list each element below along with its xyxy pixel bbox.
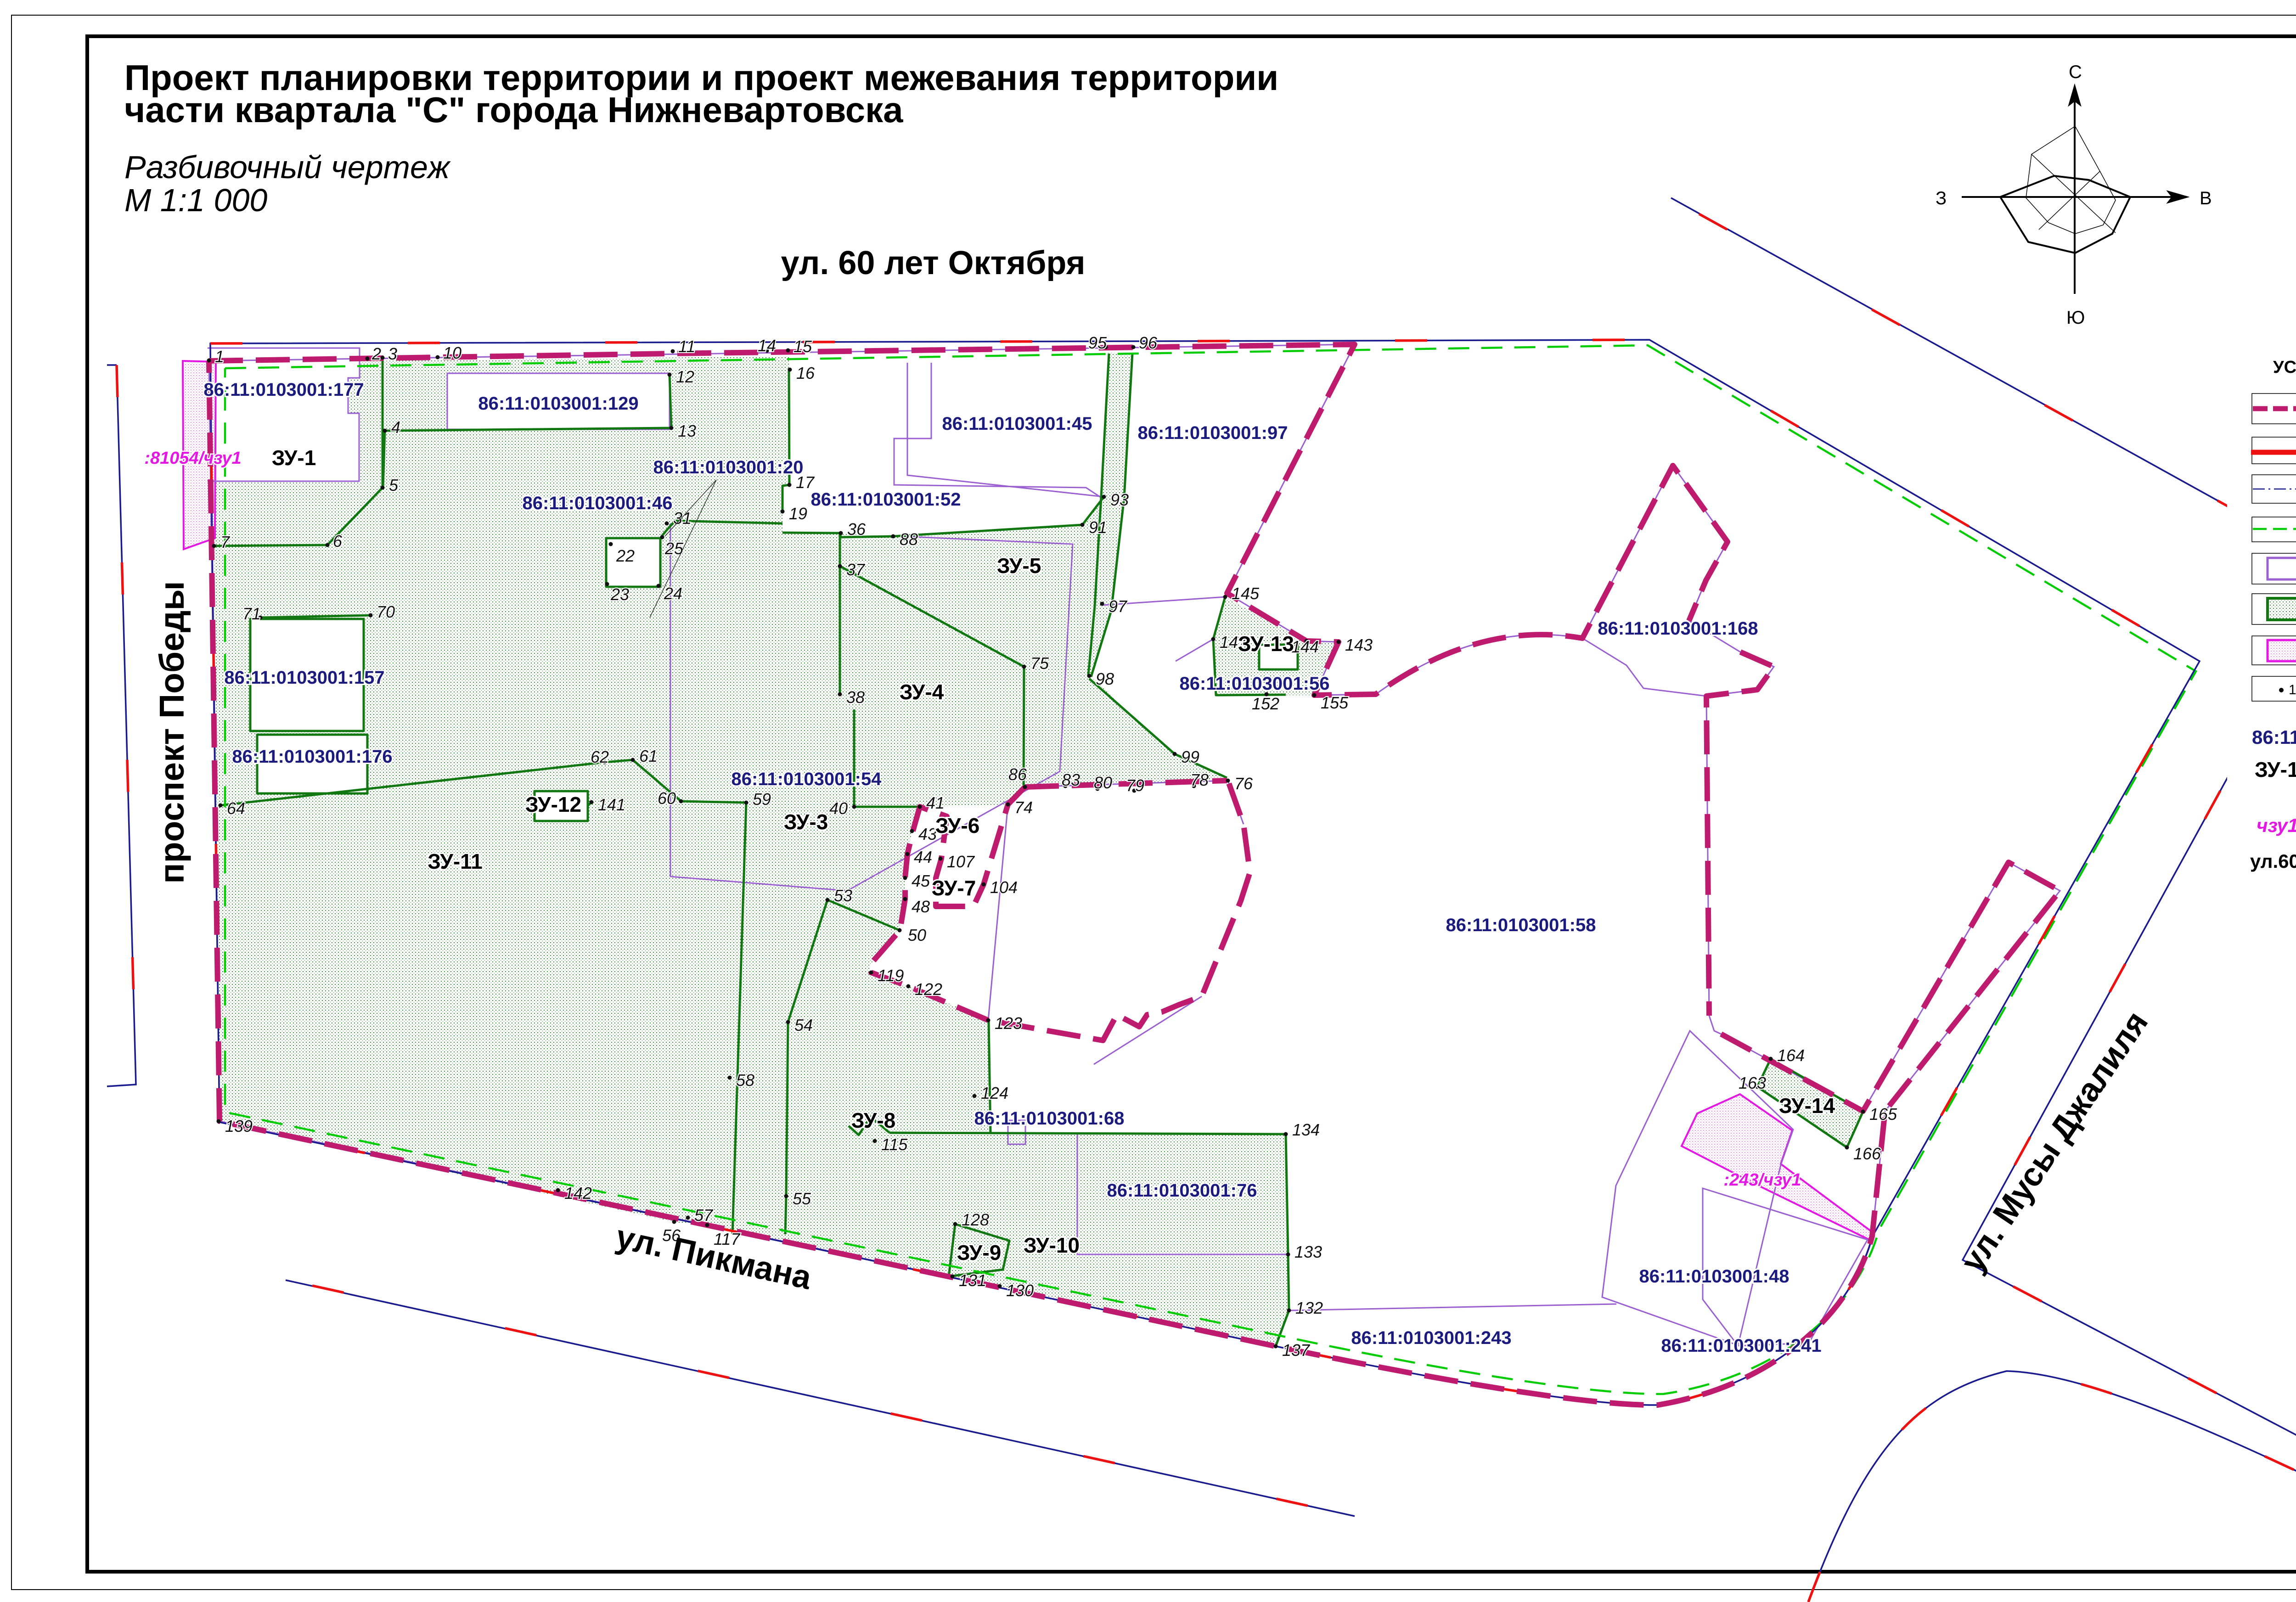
- svg-text:45: 45: [912, 871, 930, 890]
- svg-text:86:11:0103001:176: 86:11:0103001:176: [232, 747, 392, 767]
- svg-text:98: 98: [1096, 669, 1114, 688]
- svg-text:проспект Победы: проспект Победы: [152, 581, 191, 883]
- svg-text:78: 78: [1190, 770, 1209, 789]
- svg-text:144: 144: [1291, 637, 1319, 656]
- svg-text:79: 79: [1126, 776, 1144, 795]
- svg-text:48: 48: [912, 897, 930, 916]
- svg-text:3: 3: [388, 344, 397, 363]
- svg-text:86:11:0103001:76: 86:11:0103001:76: [1107, 1180, 1257, 1201]
- svg-text:Ю: Ю: [2066, 308, 2085, 328]
- svg-text:107: 107: [947, 852, 975, 871]
- svg-text:86:11:0103001:157: 86:11:0103001:157: [224, 668, 384, 688]
- svg-text:ЗУ-11: ЗУ-11: [428, 849, 483, 873]
- svg-text:124: 124: [981, 1084, 1008, 1102]
- svg-text:152: 152: [1252, 694, 1279, 713]
- svg-text:12: 12: [676, 367, 694, 386]
- svg-text:ЗУ-9: ЗУ-9: [957, 1241, 1002, 1265]
- svg-text:86:11:0103001:168: 86:11:0103001:168: [1598, 618, 1758, 639]
- svg-text:УСЛОВНЫЕ ОБОЗНАЧЕНИЯ: УСЛОВНЫЕ ОБОЗНАЧЕНИЯ: [2273, 358, 2296, 377]
- svg-text:ЗУ-7: ЗУ-7: [932, 876, 976, 900]
- svg-text::243/чзу1: :243/чзу1: [1724, 1170, 1801, 1190]
- svg-text:13: 13: [678, 422, 696, 440]
- svg-text:25: 25: [664, 539, 684, 558]
- svg-text:128: 128: [962, 1210, 989, 1229]
- svg-text:143: 143: [1345, 635, 1373, 654]
- svg-text:91: 91: [1089, 518, 1107, 537]
- svg-text:86:11:0103001:20: 86:11:0103001:20: [653, 457, 804, 478]
- svg-text:ЗУ-4: ЗУ-4: [900, 680, 944, 704]
- svg-text:75: 75: [1030, 654, 1049, 673]
- svg-text:86:11:0103001:48: 86:11:0103001:48: [1639, 1266, 1790, 1287]
- svg-text:86:11:0103001:68: 86:11:0103001:68: [974, 1108, 1125, 1129]
- svg-text:38: 38: [846, 688, 865, 707]
- svg-text:142: 142: [564, 1184, 592, 1203]
- svg-text:165: 165: [1869, 1105, 1897, 1124]
- svg-text:58: 58: [736, 1071, 754, 1090]
- svg-text:В: В: [2200, 188, 2212, 208]
- svg-text:97: 97: [1109, 597, 1128, 616]
- svg-text:24: 24: [664, 584, 682, 603]
- svg-text:ЗУ-5: ЗУ-5: [997, 554, 1041, 578]
- svg-text:86:11:0103001:56: 86:11:0103001:56: [1180, 674, 1330, 694]
- svg-text:ЗУ-1: ЗУ-1: [272, 446, 316, 470]
- svg-text:ул.60 лет Октября: ул.60 лет Октября: [2250, 850, 2296, 872]
- svg-text:ЗУ-14: ЗУ-14: [1779, 1094, 1835, 1118]
- svg-text:Разбивочный чертеж: Разбивочный чертеж: [124, 149, 451, 185]
- svg-text:86: 86: [1008, 765, 1027, 784]
- svg-text::81054/чзу1: :81054/чзу1: [144, 449, 241, 468]
- svg-text:ЗУ-6: ЗУ-6: [935, 814, 980, 838]
- svg-text:86:11:0103001:54: 86:11:0103001:54: [732, 769, 882, 789]
- svg-text:М 1:1 000: М 1:1 000: [124, 182, 267, 218]
- svg-text:ЗУ-10: ЗУ-10: [1024, 1233, 1080, 1257]
- svg-text:137: 137: [1282, 1341, 1311, 1360]
- svg-text:41: 41: [926, 793, 945, 812]
- svg-text:ЗУ-3: ЗУ-3: [784, 810, 828, 834]
- svg-text:23: 23: [610, 585, 629, 604]
- svg-text:122: 122: [915, 980, 942, 999]
- svg-text:19: 19: [789, 504, 807, 523]
- svg-text:36: 36: [847, 520, 866, 539]
- svg-text:55: 55: [793, 1189, 811, 1208]
- svg-text:1: 1: [2289, 682, 2296, 697]
- svg-text:86:11:0103001:46: 86:11:0103001:46: [523, 493, 673, 513]
- svg-text:ЗУ-1: ЗУ-1: [2255, 758, 2296, 781]
- svg-text:43: 43: [918, 825, 937, 843]
- svg-text:11: 11: [678, 337, 695, 356]
- svg-text:166: 166: [1853, 1144, 1881, 1163]
- svg-text:134: 134: [1292, 1120, 1320, 1139]
- svg-text:части квартала "С" города Ниж: части квартала "С" города Нижневартовска: [124, 90, 903, 130]
- svg-text:59: 59: [753, 790, 771, 809]
- svg-text:96: 96: [1139, 333, 1158, 352]
- svg-text:40: 40: [829, 799, 848, 818]
- svg-text:4: 4: [391, 418, 400, 437]
- svg-text:16: 16: [796, 364, 815, 382]
- svg-text:71: 71: [242, 604, 261, 623]
- svg-text:99: 99: [1181, 748, 1199, 766]
- svg-text:86:11:0103001:177: 86:11:0103001:177: [203, 380, 364, 400]
- svg-text:164: 164: [1777, 1046, 1805, 1065]
- svg-text:64: 64: [227, 799, 245, 818]
- svg-text:5: 5: [389, 476, 399, 495]
- svg-text:131: 131: [959, 1271, 986, 1290]
- svg-text:119: 119: [878, 966, 904, 985]
- svg-text:6: 6: [333, 532, 343, 551]
- svg-text:31: 31: [673, 509, 692, 528]
- svg-text:ул. 60 лет Октября: ул. 60 лет Октября: [781, 245, 1086, 281]
- svg-text:83: 83: [1062, 770, 1080, 789]
- svg-text:37: 37: [846, 560, 866, 579]
- svg-text:1: 1: [215, 347, 224, 366]
- svg-text:2: 2: [371, 344, 381, 363]
- svg-text:115: 115: [881, 1135, 908, 1154]
- svg-text:86:11:0103001:241: 86:11:0103001:241: [1661, 1336, 1821, 1356]
- svg-text:95: 95: [1088, 333, 1107, 352]
- svg-text:139: 139: [225, 1117, 253, 1135]
- svg-text:10: 10: [443, 343, 461, 362]
- svg-text:80: 80: [1094, 773, 1112, 792]
- svg-text:86:11:0103001:58: 86:11:0103001:58: [1446, 915, 1596, 935]
- svg-text:7: 7: [220, 533, 231, 551]
- svg-text:З: З: [1936, 188, 1947, 208]
- svg-text:чзу1: чзу1: [2257, 815, 2296, 836]
- svg-text:50: 50: [908, 926, 926, 944]
- svg-text:86:11:0103001:45: 86:11:0103001:45: [942, 414, 1092, 434]
- svg-text:60: 60: [658, 789, 676, 808]
- svg-text:61: 61: [639, 747, 658, 765]
- svg-text:130: 130: [1006, 1281, 1034, 1300]
- svg-text:76: 76: [1234, 774, 1253, 793]
- svg-text:133: 133: [1294, 1242, 1322, 1261]
- svg-text:86:11:0103001:243: 86:11:0103001:243: [1351, 1328, 1511, 1348]
- svg-text:С: С: [2069, 62, 2082, 82]
- svg-text:53: 53: [834, 886, 852, 905]
- svg-text:44: 44: [914, 848, 932, 866]
- svg-text:141: 141: [598, 795, 625, 814]
- svg-text:22: 22: [616, 546, 635, 565]
- svg-text:74: 74: [1014, 798, 1033, 817]
- svg-text:123: 123: [995, 1014, 1022, 1033]
- svg-text:ЗУ-8: ЗУ-8: [851, 1108, 896, 1132]
- svg-text:57: 57: [694, 1206, 714, 1225]
- svg-text:ЗУ-13: ЗУ-13: [1238, 632, 1294, 656]
- svg-text:70: 70: [377, 602, 395, 621]
- svg-text:86:11:0103001:54: 86:11:0103001:54: [2252, 726, 2296, 748]
- svg-text:62: 62: [591, 748, 609, 766]
- svg-text:ЗУ-12: ЗУ-12: [525, 793, 581, 816]
- svg-text:93: 93: [1110, 490, 1129, 509]
- svg-text:145: 145: [1232, 584, 1260, 603]
- svg-text:14: 14: [758, 336, 776, 355]
- svg-text:104: 104: [990, 878, 1018, 897]
- svg-text:88: 88: [900, 530, 918, 549]
- svg-text:86:11:0103001:129: 86:11:0103001:129: [478, 393, 638, 414]
- svg-text:132: 132: [1295, 1298, 1323, 1317]
- svg-text:54: 54: [794, 1016, 813, 1034]
- svg-text:163: 163: [1739, 1074, 1766, 1092]
- svg-text:86:11:0103001:97: 86:11:0103001:97: [1138, 423, 1288, 443]
- svg-text:86:11:0103001:52: 86:11:0103001:52: [811, 489, 961, 510]
- svg-text:155: 155: [1321, 693, 1349, 712]
- svg-text:15: 15: [793, 337, 812, 356]
